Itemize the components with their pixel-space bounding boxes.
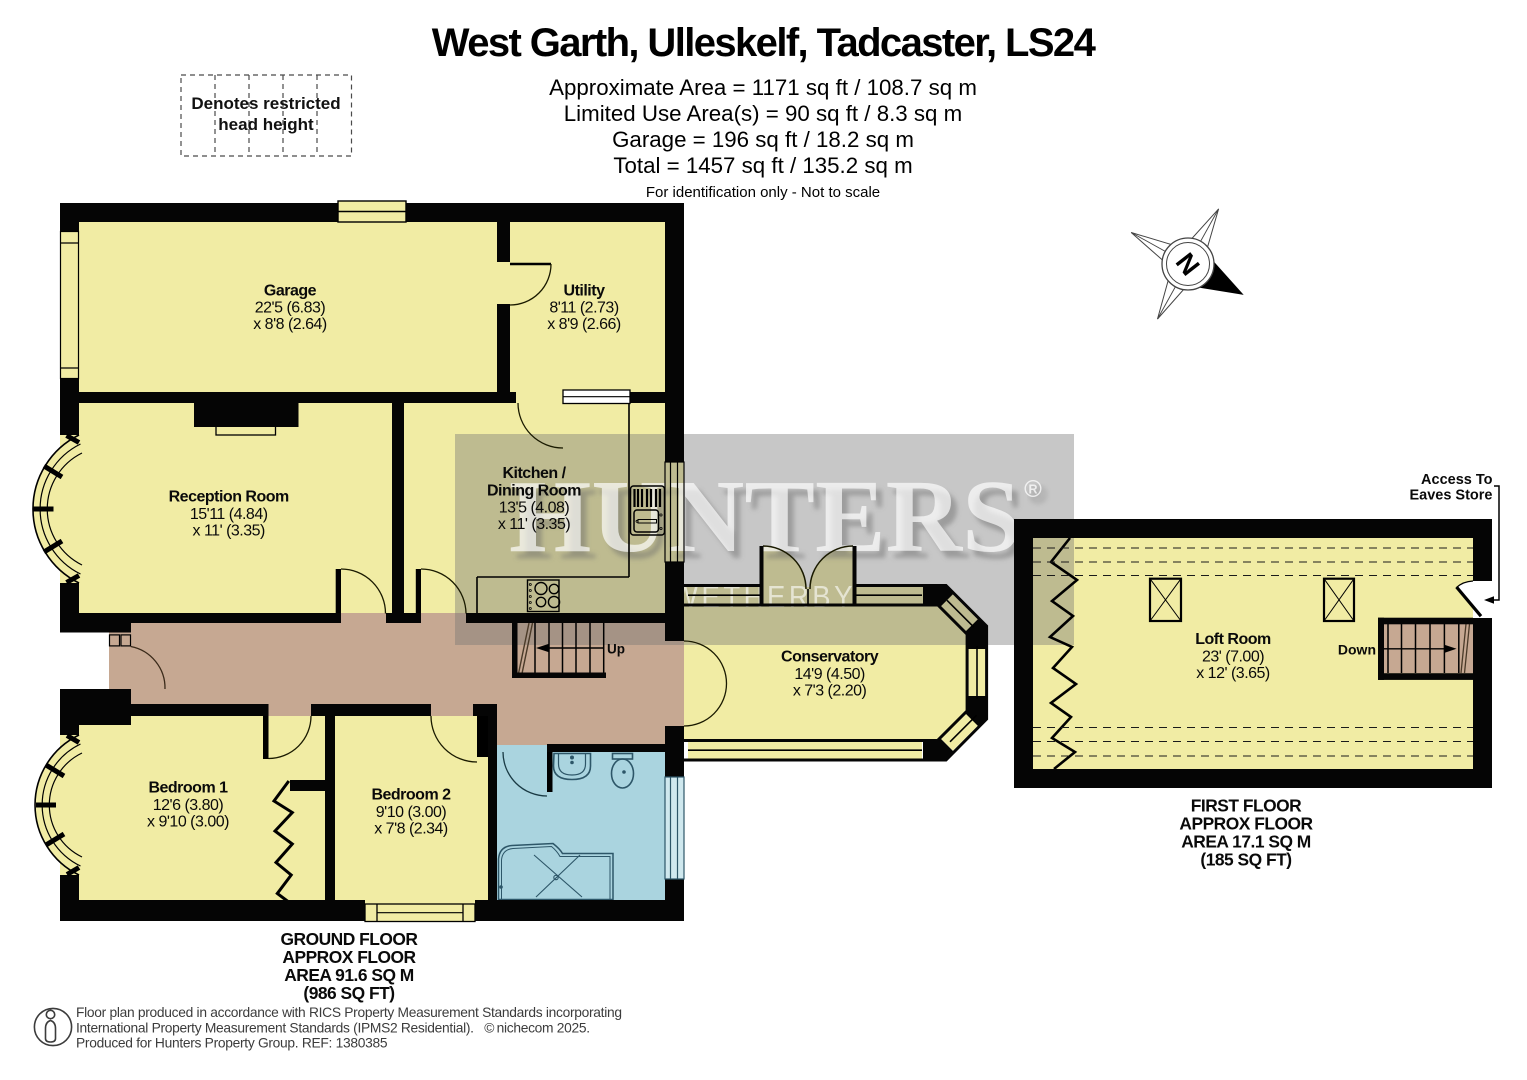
svg-text:Total = 1457 sq ft / 135.2 sq: Total = 1457 sq ft / 135.2 sq m bbox=[613, 153, 912, 178]
svg-text:Utility: Utility bbox=[564, 283, 606, 300]
svg-text:FIRST FLOOR: FIRST FLOOR bbox=[1191, 796, 1302, 816]
svg-text:Garage = 196 sq ft / 18.2 sq m: Garage = 196 sq ft / 18.2 sq m bbox=[612, 127, 914, 152]
svg-text:15'11 (4.84): 15'11 (4.84) bbox=[190, 506, 268, 523]
svg-text:APPROX FLOOR: APPROX FLOOR bbox=[282, 947, 416, 967]
svg-text:APPROX FLOOR: APPROX FLOOR bbox=[1179, 814, 1313, 834]
svg-text:(185 SQ FT): (185 SQ FT) bbox=[1200, 850, 1291, 870]
svg-text:13'5 (4.08): 13'5 (4.08) bbox=[499, 500, 570, 517]
svg-text:x 8'8 (2.64): x 8'8 (2.64) bbox=[253, 316, 327, 333]
svg-text:x 11' (3.35): x 11' (3.35) bbox=[193, 523, 266, 540]
svg-text:Loft Room: Loft Room bbox=[1195, 631, 1271, 648]
svg-text:x 7'8 (2.34): x 7'8 (2.34) bbox=[374, 821, 448, 838]
svg-text:Up: Up bbox=[607, 642, 625, 657]
svg-text:Garage: Garage bbox=[264, 283, 317, 300]
svg-text:AREA 17.1 SQ M: AREA 17.1 SQ M bbox=[1181, 832, 1311, 852]
svg-text:x 12' (3.65): x 12' (3.65) bbox=[1196, 665, 1270, 682]
svg-text:Bedroom 2: Bedroom 2 bbox=[371, 787, 451, 804]
svg-text:12'6 (3.80): 12'6 (3.80) bbox=[153, 797, 224, 814]
svg-text:22'5 (6.83): 22'5 (6.83) bbox=[255, 300, 326, 317]
svg-text:Produced for Hunters Property: Produced for Hunters Property Group. REF… bbox=[76, 1036, 388, 1051]
svg-text:Kitchen /: Kitchen / bbox=[502, 465, 566, 482]
svg-text:8'11 (2.73): 8'11 (2.73) bbox=[549, 300, 618, 317]
svg-text:GROUND FLOOR: GROUND FLOOR bbox=[281, 929, 419, 949]
svg-text:Eaves Store: Eaves Store bbox=[1409, 488, 1492, 504]
svg-text:Floor plan produced in accorda: Floor plan produced in accordance with R… bbox=[76, 1005, 622, 1020]
svg-text:Approximate Area = 1171 sq ft: Approximate Area = 1171 sq ft / 108.7 sq… bbox=[549, 75, 977, 100]
svg-text:West Garth, Ulleskelf, Tadcast: West Garth, Ulleskelf, Tadcaster, LS24 bbox=[432, 21, 1097, 65]
svg-text:Reception Room: Reception Room bbox=[169, 489, 289, 506]
svg-text:R: R bbox=[1028, 483, 1037, 497]
svg-text:x 11' (3.35): x 11' (3.35) bbox=[498, 516, 571, 533]
svg-text:Dining Room: Dining Room bbox=[487, 483, 581, 500]
svg-text:Bedroom 1: Bedroom 1 bbox=[148, 780, 228, 797]
svg-text:x 7'3 (2.20): x 7'3 (2.20) bbox=[793, 683, 867, 700]
svg-text:14'9 (4.50): 14'9 (4.50) bbox=[794, 666, 865, 683]
svg-text:AREA 91.6 SQ M: AREA 91.6 SQ M bbox=[284, 965, 414, 985]
svg-text:For identification only - Not: For identification only - Not to scale bbox=[646, 184, 880, 201]
svg-text:head height: head height bbox=[218, 115, 314, 134]
svg-text:Down: Down bbox=[1338, 642, 1376, 658]
svg-text:9'10 (3.00): 9'10 (3.00) bbox=[376, 804, 447, 821]
svg-text:x 9'10 (3.00): x 9'10 (3.00) bbox=[147, 814, 229, 831]
svg-text:Limited Use Area(s) = 90 sq ft: Limited Use Area(s) = 90 sq ft / 8.3 sq … bbox=[564, 101, 962, 126]
svg-text:HUNTERS: HUNTERS bbox=[509, 459, 1021, 574]
svg-text:x 8'9 (2.66): x 8'9 (2.66) bbox=[547, 316, 621, 333]
svg-text:Conservatory: Conservatory bbox=[781, 649, 879, 666]
svg-text:Access To: Access To bbox=[1421, 472, 1493, 488]
svg-text:International Property Measure: International Property Measurement Stand… bbox=[76, 1021, 590, 1036]
svg-text:23' (7.00): 23' (7.00) bbox=[1202, 649, 1264, 666]
svg-text:(986 SQ FT): (986 SQ FT) bbox=[303, 983, 394, 1003]
svg-text:Denotes restricted: Denotes restricted bbox=[191, 94, 340, 113]
